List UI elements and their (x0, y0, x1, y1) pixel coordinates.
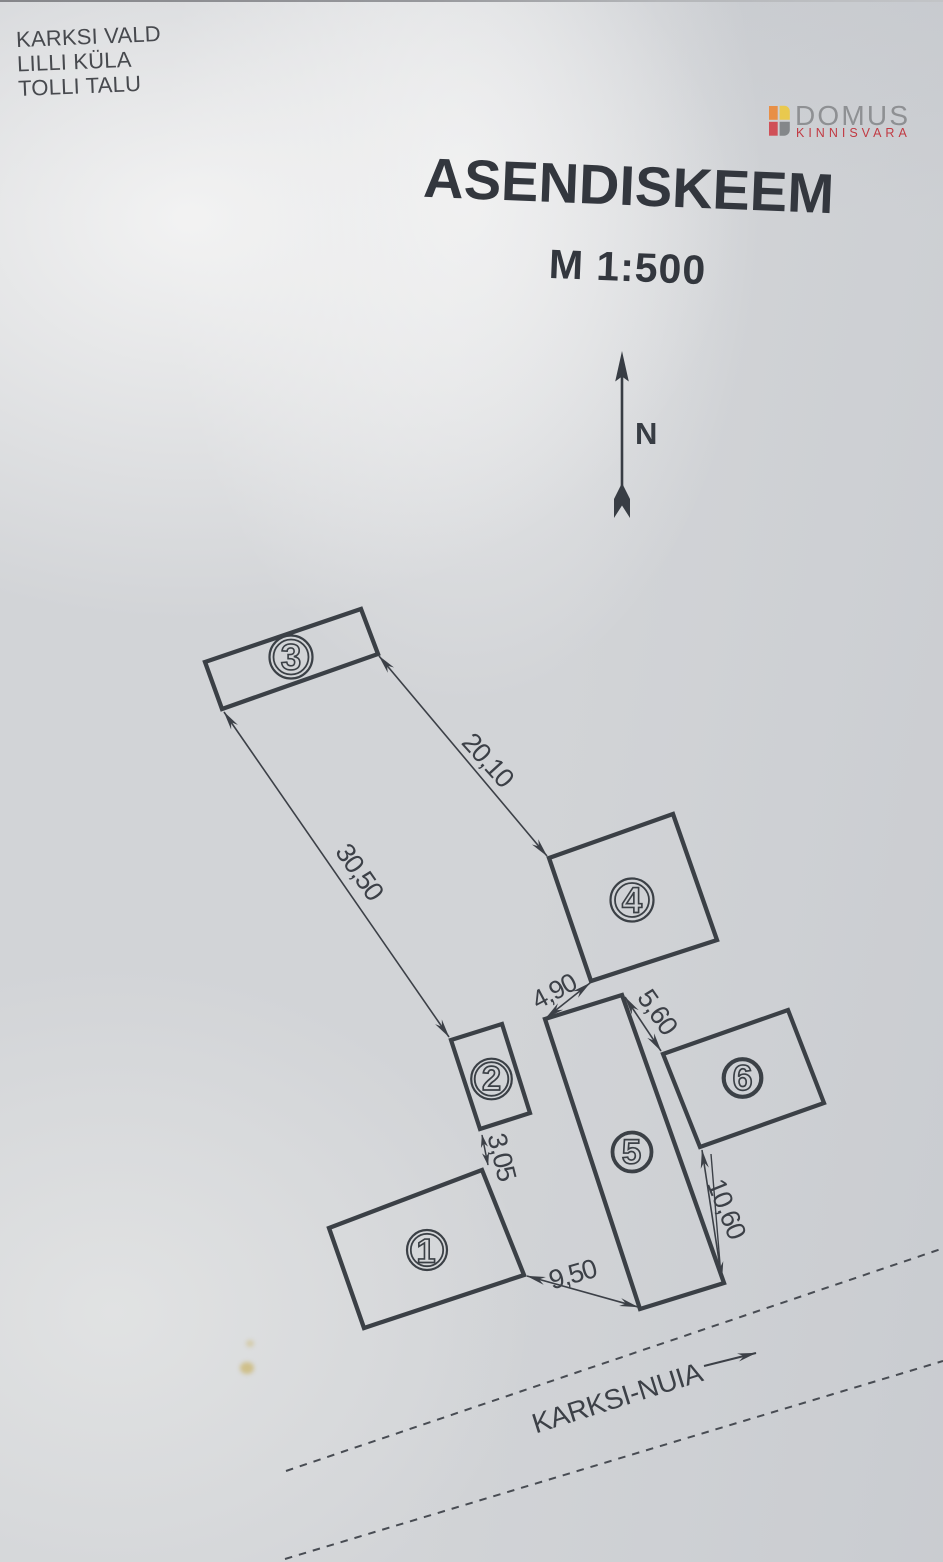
svg-text:ASENDISKEEM: ASENDISKEEM (422, 146, 835, 225)
svg-text:N: N (635, 416, 657, 451)
svg-text:10,60: 10,60 (701, 1174, 752, 1242)
svg-text:TOLLI TALU: TOLLI TALU (18, 71, 142, 101)
svg-text:KINNISVARA: KINNISVARA (796, 126, 911, 140)
svg-text:4,90: 4,90 (527, 967, 582, 1015)
svg-text:3,05: 3,05 (481, 1130, 522, 1184)
svg-text:9,50: 9,50 (545, 1253, 599, 1295)
svg-text:KARKSI-NUIA: KARKSI-NUIA (528, 1356, 706, 1439)
svg-text:KARKSI VALD: KARKSI VALD (16, 21, 162, 52)
svg-text:30,50: 30,50 (329, 838, 389, 906)
svg-text:5,60: 5,60 (631, 984, 683, 1040)
svg-text:M 1:500: M 1:500 (548, 241, 707, 293)
